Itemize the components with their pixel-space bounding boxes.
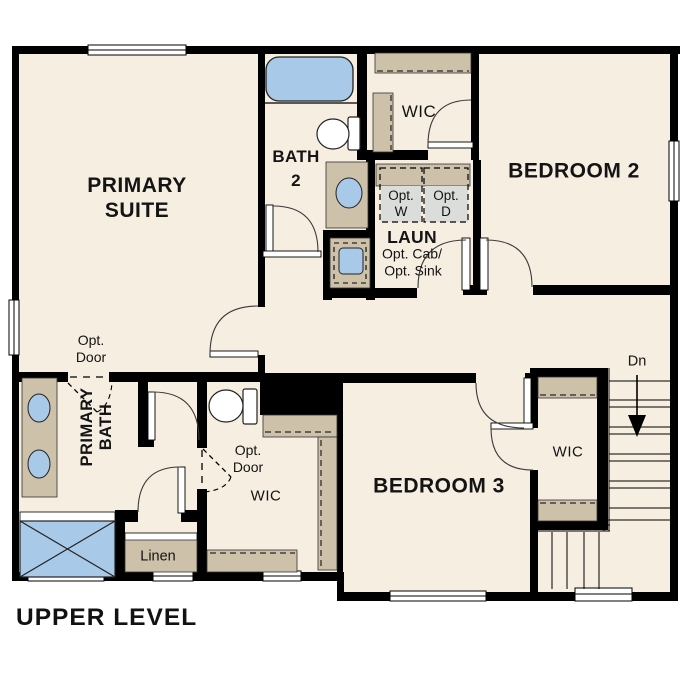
bathtub	[266, 57, 353, 101]
primary-suite-label: PRIMARYSUITE	[87, 173, 187, 223]
bedroom3-label: BEDROOM 3	[373, 474, 505, 499]
laundry-opt-sink	[339, 248, 363, 274]
bedroom2-door-leaf	[480, 238, 488, 290]
toilet-room-door-leaf	[148, 392, 155, 440]
bath2-opening-threshold	[263, 251, 321, 257]
opt-door-wic-label: Opt.Door	[233, 442, 263, 476]
bath2-sink	[336, 178, 362, 208]
bath2-label: BATH2	[272, 145, 319, 193]
primary-sink-1	[28, 394, 50, 422]
opt-sink-label: Opt. Sink	[384, 263, 442, 280]
bath2-door-leaf	[266, 205, 273, 252]
stairs-down-label: Dn	[628, 354, 647, 371]
opt-cab-label: Opt. Cab/	[382, 246, 442, 263]
plan-title: UPPER LEVEL	[16, 604, 197, 632]
shower	[20, 512, 115, 577]
primary-suite-door-leaf	[210, 351, 258, 357]
wic-top-label: WIC	[402, 102, 437, 122]
wic-top-door-leaf	[428, 142, 473, 148]
bath2-toilet	[317, 117, 360, 150]
primary-toilet	[209, 389, 257, 424]
linen-door-leaf	[178, 467, 185, 513]
wic-primary-label: WIC	[251, 487, 282, 504]
opt-door-suite-label: Opt.Door	[76, 332, 106, 366]
opt-washer-label: Opt.W	[388, 188, 414, 220]
wic-bedroom3-label: WIC	[553, 443, 584, 460]
bedroom3-door-leaf	[524, 378, 531, 428]
linen-label: Linen	[140, 549, 175, 566]
laundry-door-leaf	[462, 238, 470, 290]
opt-dryer-label: Opt.D	[433, 188, 459, 220]
bedroom3-wic-door-leaf	[491, 423, 533, 429]
floor-plan: PRIMARYSUITE BATH2 WIC BEDROOM 2 Opt.W O…	[0, 0, 687, 687]
bedroom2-label: BEDROOM 2	[508, 159, 640, 184]
primary-bath-label: PRIMARYBATH	[78, 388, 116, 467]
primary-sink-2	[28, 450, 50, 478]
